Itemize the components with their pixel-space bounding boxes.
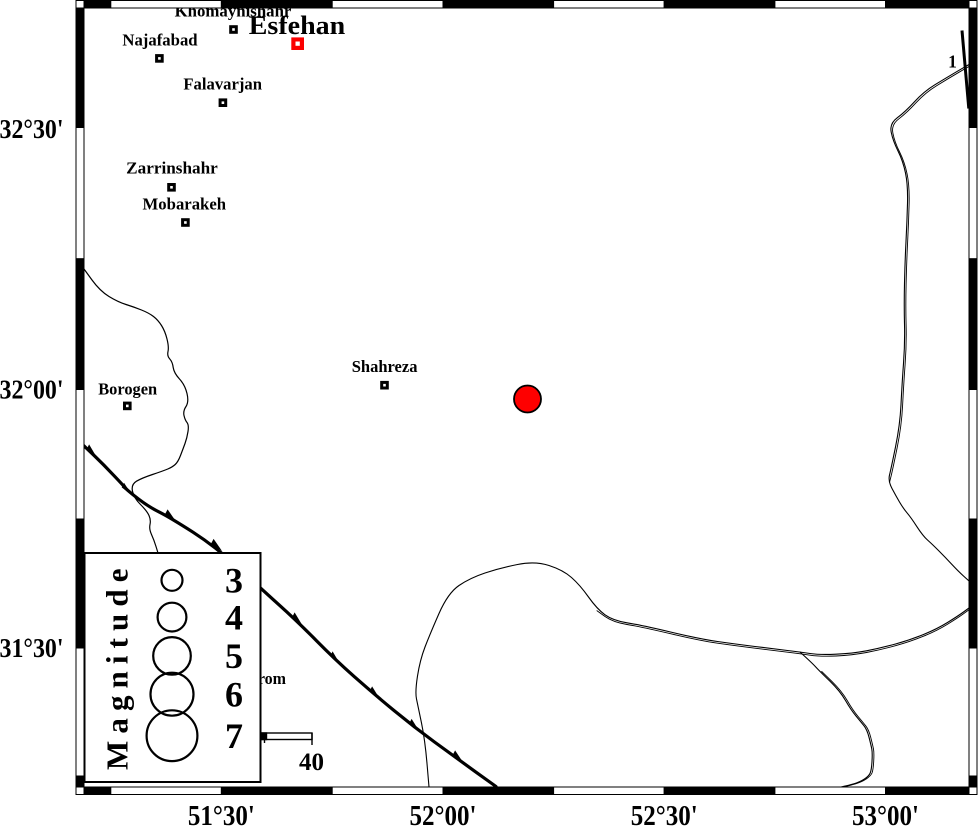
svg-text:53°00': 53°00' [852,801,919,826]
svg-text:32°30': 32°30' [0,114,64,144]
svg-text:5: 5 [225,636,243,676]
svg-text:Borogen: Borogen [98,380,158,399]
svg-text:1: 1 [948,52,957,72]
svg-text:52°00': 52°00' [410,801,477,826]
svg-text:Mobarakeh: Mobarakeh [143,195,227,214]
svg-text:Falavarjan: Falavarjan [183,75,262,94]
svg-text:6: 6 [225,674,243,714]
svg-text:52°30': 52°30' [631,801,698,826]
svg-text:51°30': 51°30' [188,801,255,826]
svg-text:4: 4 [225,597,243,637]
svg-text:Zarrinshahr: Zarrinshahr [126,159,218,178]
svg-text:31°30': 31°30' [0,633,64,663]
svg-text:32°00': 32°00' [0,374,64,404]
svg-text:Magnitude: Magnitude [100,561,135,770]
svg-text:Najafabad: Najafabad [122,31,198,50]
svg-text:40: 40 [299,749,324,776]
svg-text:Esfehan: Esfehan [249,11,346,40]
svg-text:3: 3 [225,561,243,601]
svg-text:Shahreza: Shahreza [352,357,418,376]
svg-text:7: 7 [225,716,243,756]
